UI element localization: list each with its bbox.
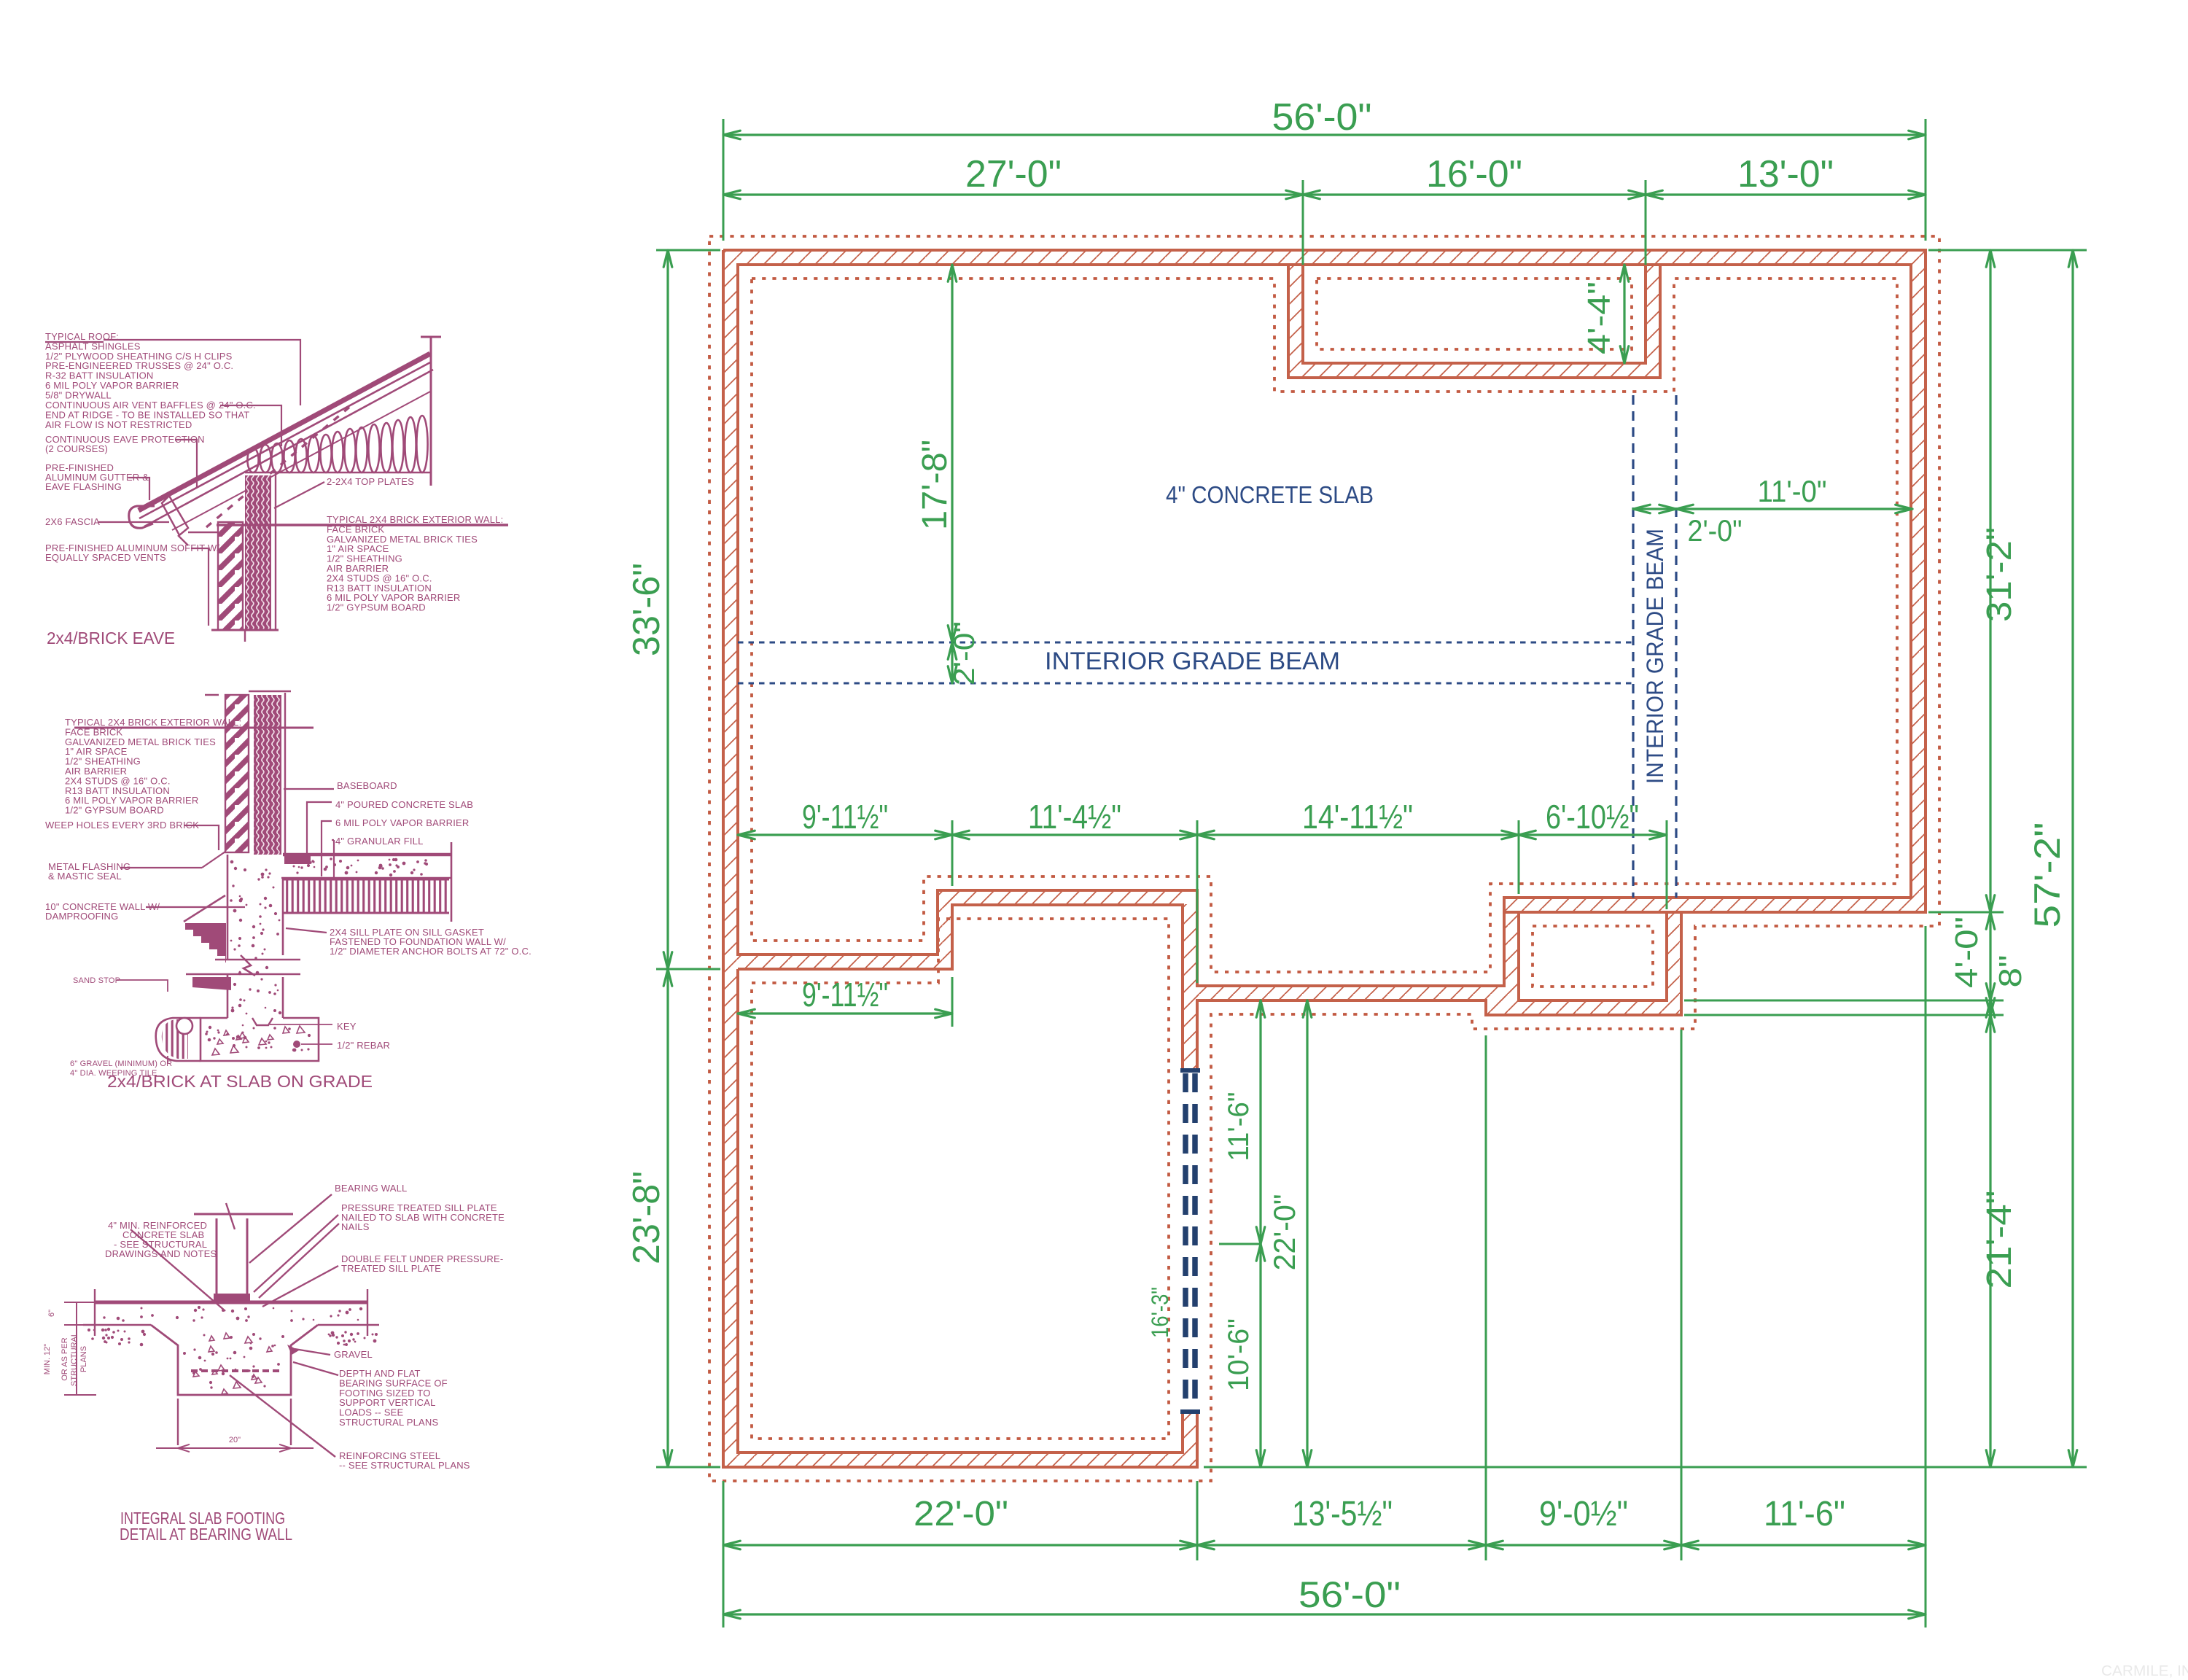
svg-text:20": 20" bbox=[229, 1436, 241, 1444]
svg-text:6" GRAVEL (MINIMUM) OR: 6" GRAVEL (MINIMUM) OR bbox=[70, 1059, 172, 1068]
svg-text:13'-5½": 13'-5½" bbox=[1292, 1495, 1393, 1533]
svg-text:4" GRANULAR FILL: 4" GRANULAR FILL bbox=[335, 836, 424, 847]
svg-text:6'-10½": 6'-10½" bbox=[1546, 798, 1639, 836]
svg-text:4" CONCRETE SLAB: 4" CONCRETE SLAB bbox=[1166, 481, 1374, 508]
svg-text:INTERIOR GRADE BEAM: INTERIOR GRADE BEAM bbox=[1642, 529, 1668, 784]
svg-text:27'-0": 27'-0" bbox=[965, 153, 1062, 195]
svg-text:13'-0": 13'-0" bbox=[1737, 153, 1834, 195]
svg-text:1/2" GYPSUM BOARD: 1/2" GYPSUM BOARD bbox=[65, 805, 164, 816]
svg-text:9'-0½": 9'-0½" bbox=[1539, 1495, 1628, 1533]
svg-text:& MASTIC SEAL: & MASTIC SEAL bbox=[48, 871, 122, 882]
svg-text:22'-0": 22'-0" bbox=[914, 1495, 1008, 1533]
svg-text:14'-11½": 14'-11½" bbox=[1302, 798, 1413, 836]
svg-text:STRUCTURAL: STRUCTURAL bbox=[70, 1332, 79, 1386]
svg-text:16'-0": 16'-0" bbox=[1426, 153, 1522, 195]
svg-text:BASEBOARD: BASEBOARD bbox=[337, 780, 397, 791]
svg-text:11'-0": 11'-0" bbox=[1758, 474, 1827, 508]
svg-text:1/2" GYPSUM BOARD: 1/2" GYPSUM BOARD bbox=[327, 602, 426, 613]
svg-text:DRAWINGS AND NOTES: DRAWINGS AND NOTES bbox=[105, 1248, 217, 1259]
svg-text:21'-4": 21'-4" bbox=[1980, 1191, 2019, 1289]
svg-text:1/2" REBAR: 1/2" REBAR bbox=[337, 1040, 390, 1051]
svg-text:DETAIL AT BEARING WALL: DETAIL AT BEARING WALL bbox=[120, 1525, 292, 1544]
svg-text:22'-0": 22'-0" bbox=[1267, 1194, 1301, 1271]
svg-text:2X6 FASCIA: 2X6 FASCIA bbox=[45, 516, 100, 527]
svg-text:PLANS: PLANS bbox=[79, 1346, 88, 1372]
svg-text:4" POURED CONCRETE SLAB: 4" POURED CONCRETE SLAB bbox=[335, 799, 473, 810]
svg-text:2'-0": 2'-0" bbox=[949, 621, 981, 685]
svg-text:11'-6": 11'-6" bbox=[1223, 1092, 1255, 1162]
svg-text:2x4/BRICK EAVE: 2x4/BRICK EAVE bbox=[47, 629, 175, 647]
svg-text:BEARING WALL: BEARING WALL bbox=[335, 1183, 407, 1194]
svg-text:INTERIOR GRADE BEAM: INTERIOR GRADE BEAM bbox=[1045, 647, 1340, 675]
svg-text:DAMPROOFING: DAMPROOFING bbox=[45, 911, 118, 922]
svg-text:4'-4": 4'-4" bbox=[1581, 281, 1617, 354]
svg-text:MIN. 12": MIN. 12" bbox=[43, 1344, 52, 1375]
svg-text:11'-6": 11'-6" bbox=[1764, 1495, 1845, 1533]
svg-text:EAVE FLASHING: EAVE FLASHING bbox=[45, 481, 122, 492]
svg-text:AIR FLOW IS NOT RESTRICTED: AIR FLOW IS NOT RESTRICTED bbox=[45, 419, 192, 430]
svg-text:1/2" DIAMETER ANCHOR BOLTS AT: 1/2" DIAMETER ANCHOR BOLTS AT 72" O.C. bbox=[330, 946, 532, 957]
svg-text:6": 6" bbox=[47, 1310, 56, 1317]
svg-text:17'-8": 17'-8" bbox=[916, 440, 954, 530]
svg-text:2-2X4 TOP PLATES: 2-2X4 TOP PLATES bbox=[327, 476, 414, 487]
svg-text:WEEP HOLES EVERY 3RD BRICK: WEEP HOLES EVERY 3RD BRICK bbox=[45, 820, 199, 831]
svg-text:TREATED SILL PLATE: TREATED SILL PLATE bbox=[341, 1263, 441, 1274]
svg-text:(2 COURSES): (2 COURSES) bbox=[45, 443, 108, 454]
svg-text:-- SEE STRUCTURAL PLANS: -- SEE STRUCTURAL PLANS bbox=[339, 1460, 470, 1471]
svg-text:OR AS PER: OR AS PER bbox=[61, 1337, 69, 1380]
svg-text:10'-6": 10'-6" bbox=[1223, 1318, 1255, 1391]
svg-text:SAND STOP: SAND STOP bbox=[73, 976, 120, 985]
svg-text:STRUCTURAL PLANS: STRUCTURAL PLANS bbox=[339, 1417, 438, 1428]
svg-text:31'-2": 31'-2" bbox=[1980, 527, 2019, 622]
svg-text:56'-0": 56'-0" bbox=[1299, 1574, 1401, 1615]
svg-text:9'-11½": 9'-11½" bbox=[802, 798, 888, 836]
svg-text:2'-0": 2'-0" bbox=[1688, 513, 1743, 548]
svg-text:57'-2": 57'-2" bbox=[2027, 822, 2068, 928]
svg-text:NAILS: NAILS bbox=[341, 1221, 370, 1232]
svg-text:4'-0": 4'-0" bbox=[1949, 917, 1985, 988]
svg-text:EQUALLY SPACED VENTS: EQUALLY SPACED VENTS bbox=[45, 552, 166, 563]
svg-text:11'-4½": 11'-4½" bbox=[1028, 798, 1121, 836]
svg-text:33'-6": 33'-6" bbox=[626, 563, 668, 656]
svg-text:9'-11½": 9'-11½" bbox=[802, 976, 888, 1014]
svg-text:6 MIL POLY VAPOR BARRIER: 6 MIL POLY VAPOR BARRIER bbox=[335, 817, 470, 828]
svg-text:KEY: KEY bbox=[337, 1021, 357, 1032]
svg-text:16'-3": 16'-3" bbox=[1147, 1287, 1173, 1338]
svg-text:2x4/BRICK AT SLAB ON GRADE: 2x4/BRICK AT SLAB ON GRADE bbox=[107, 1072, 373, 1091]
svg-text:GRAVEL: GRAVEL bbox=[334, 1349, 373, 1360]
svg-text:23'-8": 23'-8" bbox=[626, 1171, 668, 1264]
svg-text:CARMILE, INC: CARMILE, INC bbox=[2101, 1663, 2188, 1679]
svg-text:8": 8" bbox=[1993, 955, 2028, 988]
svg-text:56'-0": 56'-0" bbox=[1272, 96, 1372, 139]
